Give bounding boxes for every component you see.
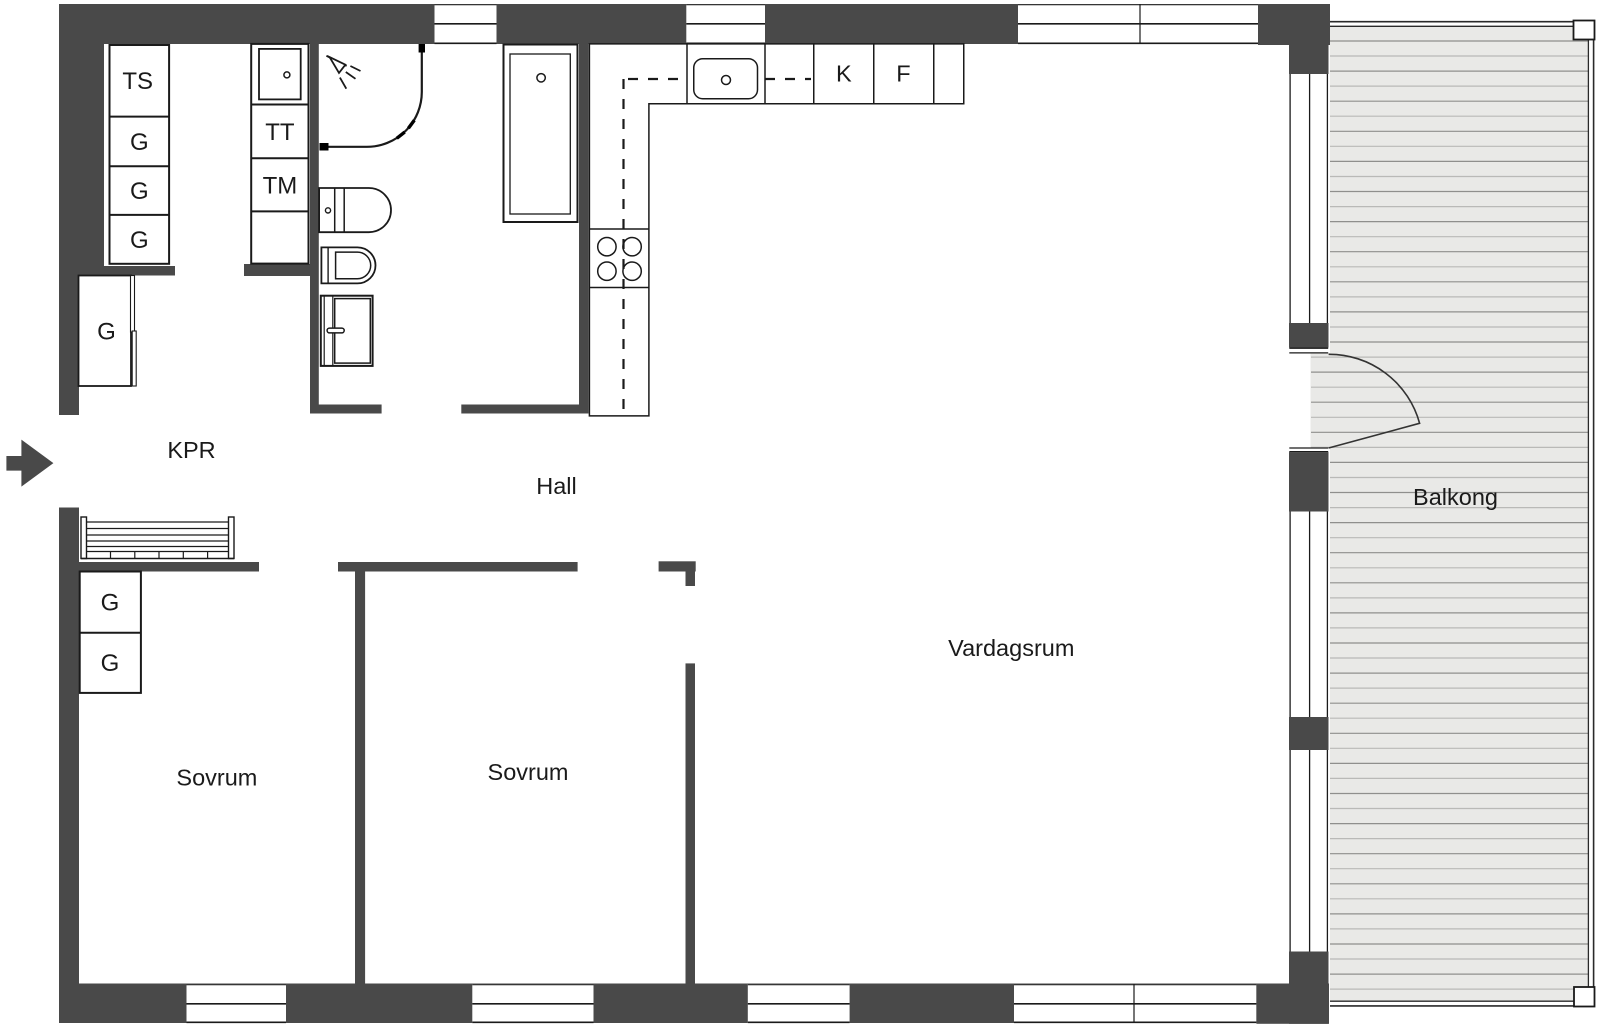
svg-text:Hall: Hall [536, 473, 576, 499]
svg-text:G: G [130, 178, 149, 205]
svg-text:KPR: KPR [167, 437, 215, 463]
svg-text:Vardagsrum: Vardagsrum [948, 635, 1074, 661]
svg-text:Balkong: Balkong [1413, 484, 1498, 510]
svg-text:Sovrum: Sovrum [176, 765, 257, 791]
svg-text:G: G [130, 227, 149, 254]
svg-text:G: G [101, 650, 120, 677]
svg-text:Sovrum: Sovrum [488, 759, 569, 785]
svg-text:G: G [130, 129, 149, 156]
svg-text:G: G [97, 319, 116, 346]
svg-text:K: K [836, 61, 852, 87]
svg-text:G: G [101, 590, 120, 617]
svg-text:F: F [896, 61, 910, 87]
svg-text:TS: TS [122, 68, 153, 95]
svg-text:TM: TM [263, 172, 298, 199]
svg-text:TT: TT [265, 119, 295, 146]
